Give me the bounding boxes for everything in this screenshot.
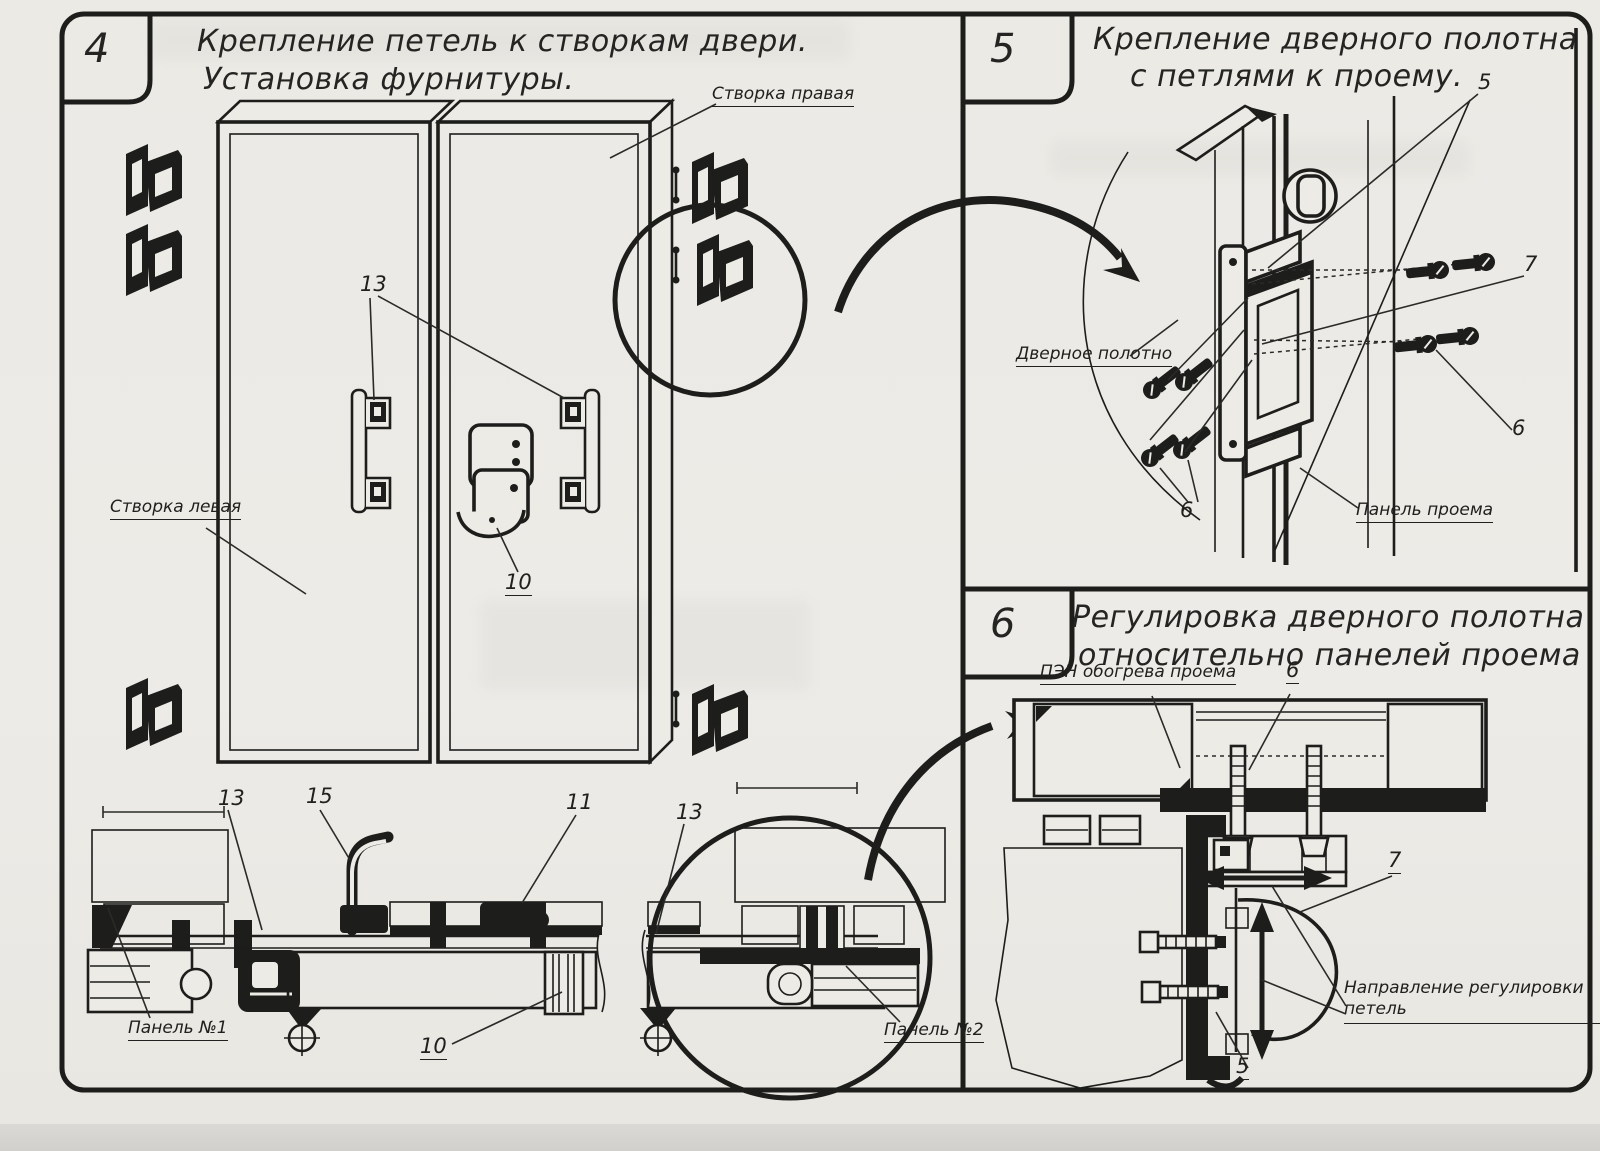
label-door-leaf: Дверное полотно (1016, 344, 1172, 367)
panel4-title-line1: Крепление петель к створкам двери. (197, 24, 808, 59)
label-heater: ПЭН обогрева проема (1040, 662, 1236, 685)
panel6-drawing (996, 694, 1486, 1088)
callout-13-handles: 13 (360, 272, 387, 296)
callout-6-bolt: 6 (1286, 658, 1299, 684)
callout-15-handle: 15 (306, 784, 333, 808)
panel6-title-line1: Регулировка дверного полотна (1072, 600, 1584, 635)
callout-7-plate: 7 (1524, 252, 1537, 276)
callout-5-hinge: 5 (1478, 70, 1491, 94)
scanner-edge-strip (0, 1124, 1600, 1151)
callout-6-screws-left: 6 (1180, 498, 1193, 522)
label-opening-panel: Панель проема (1356, 500, 1493, 523)
door-lock (458, 425, 532, 536)
label-panel-1: Панель №1 (128, 1018, 228, 1041)
label-adjust-line2: петель (1344, 999, 1407, 1019)
label-left-leaf: Створка левая (110, 497, 241, 520)
hinge-bolt (1140, 932, 1226, 952)
callout-5-hinge-body: 5 (1236, 1054, 1249, 1080)
callout-13-section-right: 13 (676, 800, 703, 824)
callout-6-screws-right: 6 (1512, 416, 1525, 440)
callout-10-lock: 10 (505, 570, 532, 596)
panel5-drawing (1083, 28, 1576, 572)
callout-10-section: 10 (420, 1034, 447, 1060)
section-number-6: 6 (990, 601, 1015, 647)
scanned-assembly-sheet: 4 5 6 Крепление петель к створкам двери.… (0, 0, 1600, 1151)
hinge-bolt (1142, 982, 1228, 1002)
callout-7-hinge-leaf: 7 (1388, 848, 1401, 874)
label-right-leaf: Створка правая (712, 84, 854, 107)
panel5-title-line1: Крепление дверного полотна (1093, 22, 1578, 57)
panel5-hinge (1220, 232, 1312, 476)
section-number-5: 5 (990, 26, 1015, 72)
arrow-to-panel5 (838, 200, 1140, 312)
label-adjust-direction: Направление регулировки петель (1344, 978, 1600, 1024)
hinge-pins (673, 167, 680, 728)
section-number-4: 4 (84, 26, 109, 72)
caster (284, 1008, 322, 1056)
callout-13-section-left: 13 (218, 786, 245, 810)
panel4-title-line2: Установка фурнитуры. (203, 62, 574, 97)
label-adjust-line1: Направление регулировки (1344, 978, 1584, 998)
callout-11-lock-section: 11 (566, 790, 593, 814)
vertical-adjust-arrow (1250, 902, 1274, 1060)
label-panel-2: Панель №2 (884, 1020, 984, 1043)
panel4-doors (126, 101, 1140, 762)
panel5-title-line2: с петлями к проему. (1130, 59, 1463, 94)
